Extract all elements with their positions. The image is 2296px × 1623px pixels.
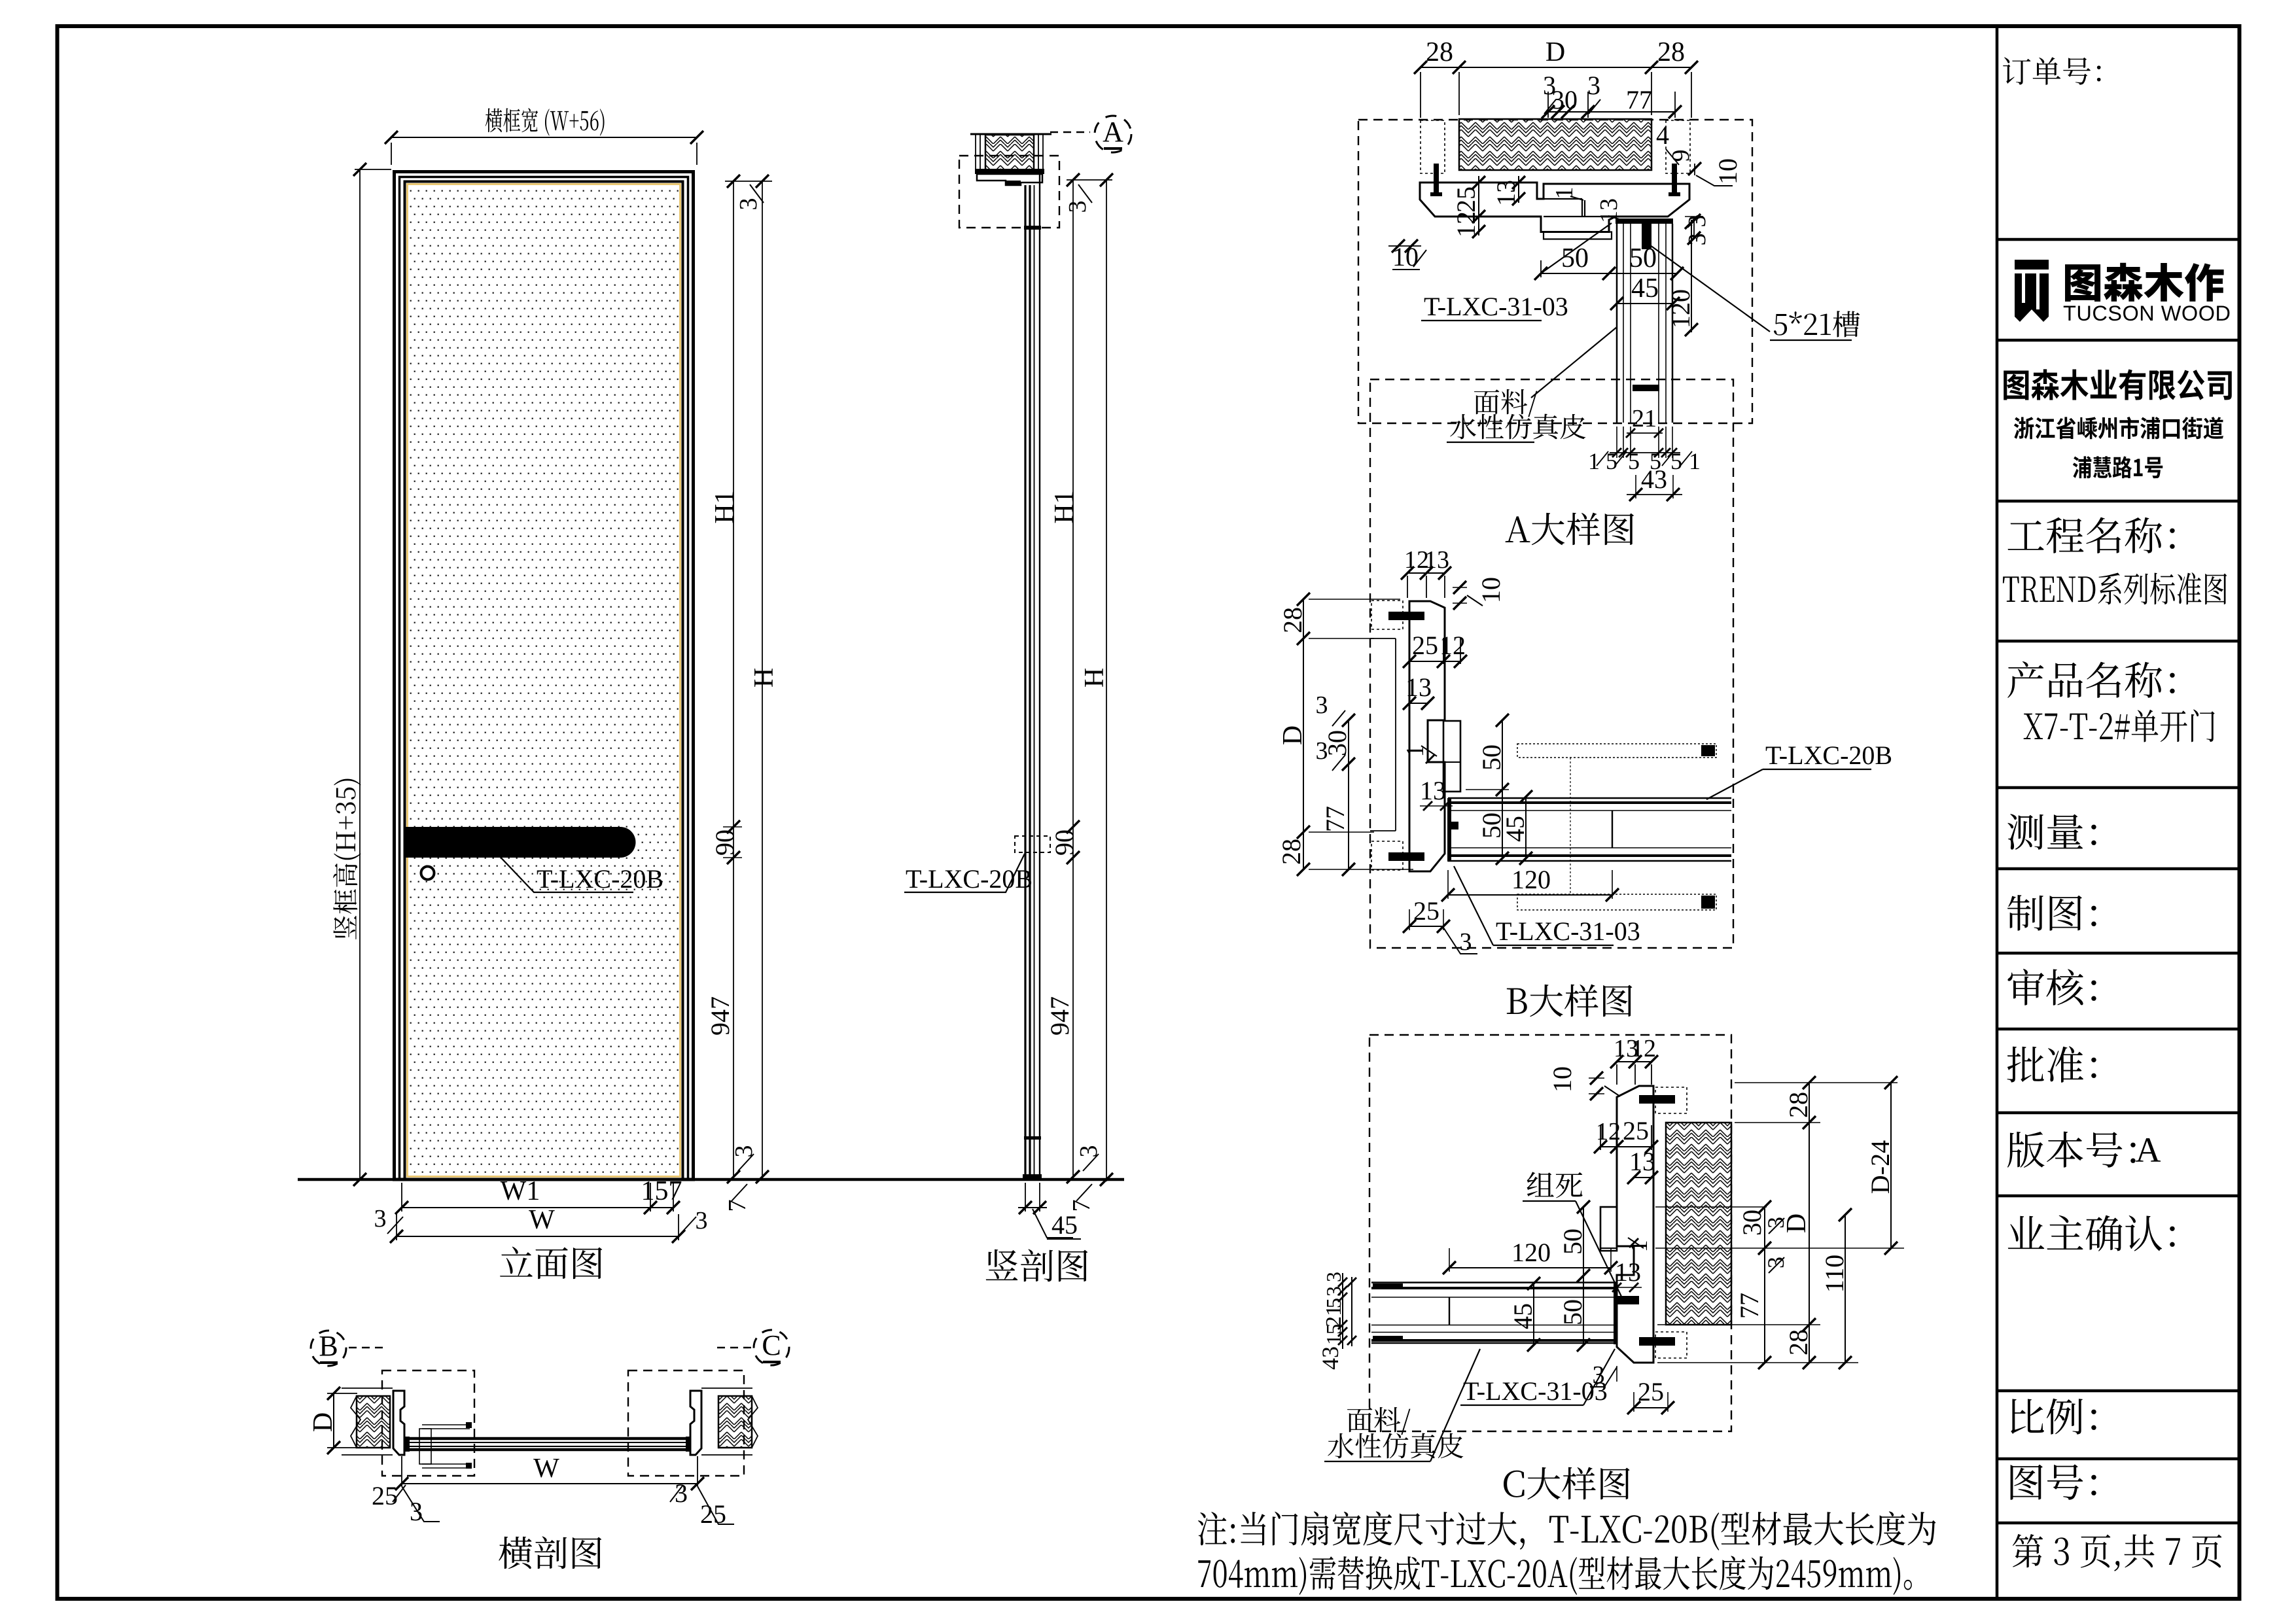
svg-text:25: 25: [1412, 631, 1438, 660]
svg-text:30: 30: [1551, 85, 1578, 114]
svg-text:90: 90: [1050, 829, 1079, 856]
svg-text:10: 10: [1476, 577, 1506, 603]
svg-text:25: 25: [1623, 1116, 1649, 1145]
svg-text:28: 28: [1277, 839, 1306, 865]
svg-text:25: 25: [372, 1481, 398, 1510]
svg-text:D: D: [1545, 37, 1565, 67]
svg-text:T-LXC-20B: T-LXC-20B: [906, 864, 1033, 894]
svg-text:H1: H1: [710, 490, 740, 523]
svg-text:50: 50: [1558, 1229, 1587, 1255]
svg-text:50: 50: [1477, 744, 1506, 771]
svg-text:120: 120: [1511, 865, 1551, 894]
svg-text:21: 21: [1632, 405, 1657, 432]
svg-text:28: 28: [1784, 1329, 1813, 1355]
svg-text:B: B: [319, 1330, 338, 1362]
svg-text:5: 5: [1628, 448, 1640, 474]
svg-text:3: 3: [1593, 1361, 1605, 1389]
svg-text:25: 25: [1413, 896, 1439, 926]
svg-text:10: 10: [1713, 158, 1742, 184]
svg-text:50: 50: [1558, 1299, 1587, 1325]
svg-text:H: H: [749, 668, 779, 688]
svg-text:1: 1: [1588, 448, 1600, 474]
svg-text:43: 43: [1317, 1346, 1343, 1370]
svg-text:120: 120: [1666, 289, 1695, 328]
svg-text:13: 13: [1629, 1147, 1655, 1176]
svg-text:28: 28: [1426, 37, 1453, 67]
svg-text:947: 947: [705, 996, 735, 1036]
svg-text:25: 25: [1451, 186, 1481, 213]
svg-text:A: A: [1103, 116, 1123, 148]
svg-text:C: C: [762, 1329, 781, 1361]
svg-text:13: 13: [1405, 672, 1432, 702]
svg-text:13: 13: [1491, 180, 1521, 206]
svg-text:110: 110: [1820, 1255, 1849, 1293]
svg-text:157: 157: [641, 1176, 682, 1206]
svg-text:H1: H1: [1050, 490, 1080, 523]
svg-text:3: 3: [1587, 71, 1600, 100]
svg-text:13: 13: [1420, 776, 1446, 805]
svg-text:H: H: [1080, 668, 1110, 688]
svg-text:9: 9: [1667, 150, 1695, 162]
svg-text:12: 12: [1631, 1035, 1656, 1062]
svg-text:10: 10: [1547, 1066, 1577, 1092]
svg-text:W1: W1: [501, 1176, 540, 1206]
svg-text:1: 1: [1402, 745, 1429, 758]
svg-text:D: D: [1278, 725, 1308, 745]
svg-text:45: 45: [1631, 273, 1659, 304]
svg-text:21: 21: [1322, 1305, 1346, 1327]
svg-text:50: 50: [1561, 243, 1589, 273]
svg-text:3: 3: [696, 1207, 708, 1234]
svg-text:13: 13: [1615, 1257, 1641, 1287]
svg-text:45: 45: [1051, 1210, 1078, 1240]
svg-text:4: 4: [1656, 120, 1669, 150]
svg-text:77: 77: [1320, 806, 1350, 832]
svg-text:W: W: [529, 1205, 555, 1235]
svg-text:3: 3: [1322, 1286, 1345, 1297]
svg-text:12: 12: [1596, 1118, 1621, 1145]
svg-text:28: 28: [1657, 37, 1685, 67]
svg-text:120: 120: [1511, 1238, 1551, 1267]
svg-text:3: 3: [1316, 737, 1328, 765]
svg-text:T-LXC-20B: T-LXC-20B: [537, 864, 663, 894]
svg-text:1: 1: [1322, 1335, 1345, 1345]
svg-text:T-LXC-20B: T-LXC-20B: [1765, 741, 1892, 770]
svg-text:3: 3: [1075, 1145, 1103, 1158]
svg-text:W: W: [533, 1454, 559, 1484]
svg-text:3: 3: [1316, 691, 1328, 719]
svg-text:D: D: [308, 1412, 338, 1432]
svg-text:12: 12: [1439, 631, 1466, 660]
svg-text:28: 28: [1784, 1092, 1813, 1118]
svg-text:3: 3: [730, 1145, 758, 1158]
svg-text:7: 7: [724, 1200, 751, 1212]
svg-text:TUCSON WOOD: TUCSON WOOD: [2063, 302, 2231, 325]
svg-text:T-LXC-31-03: T-LXC-31-03: [1424, 292, 1568, 321]
svg-text:5: 5: [1322, 1324, 1345, 1335]
svg-text:25: 25: [1638, 1377, 1664, 1406]
svg-text:13: 13: [1424, 546, 1449, 574]
svg-text:A: A: [2136, 1130, 2161, 1170]
svg-text:3: 3: [1322, 1272, 1345, 1282]
svg-text:1: 1: [1689, 448, 1701, 474]
svg-text:28: 28: [1278, 607, 1307, 633]
svg-text:12: 12: [1451, 211, 1481, 237]
svg-text:947: 947: [1045, 996, 1074, 1036]
svg-text:77: 77: [1735, 1293, 1764, 1319]
svg-text:90: 90: [710, 829, 739, 856]
svg-text:3: 3: [374, 1205, 387, 1232]
svg-text:43: 43: [1641, 464, 1667, 494]
svg-text:5: 5: [1670, 448, 1682, 474]
svg-text:T-LXC-31-03: T-LXC-31-03: [1496, 916, 1640, 946]
svg-text:D-24: D-24: [1865, 1140, 1895, 1194]
svg-text:3: 3: [1064, 201, 1091, 213]
svg-text:3: 3: [1460, 928, 1472, 956]
svg-text:77: 77: [1626, 85, 1652, 114]
svg-text:45: 45: [1500, 816, 1530, 842]
svg-text:3: 3: [735, 198, 762, 211]
